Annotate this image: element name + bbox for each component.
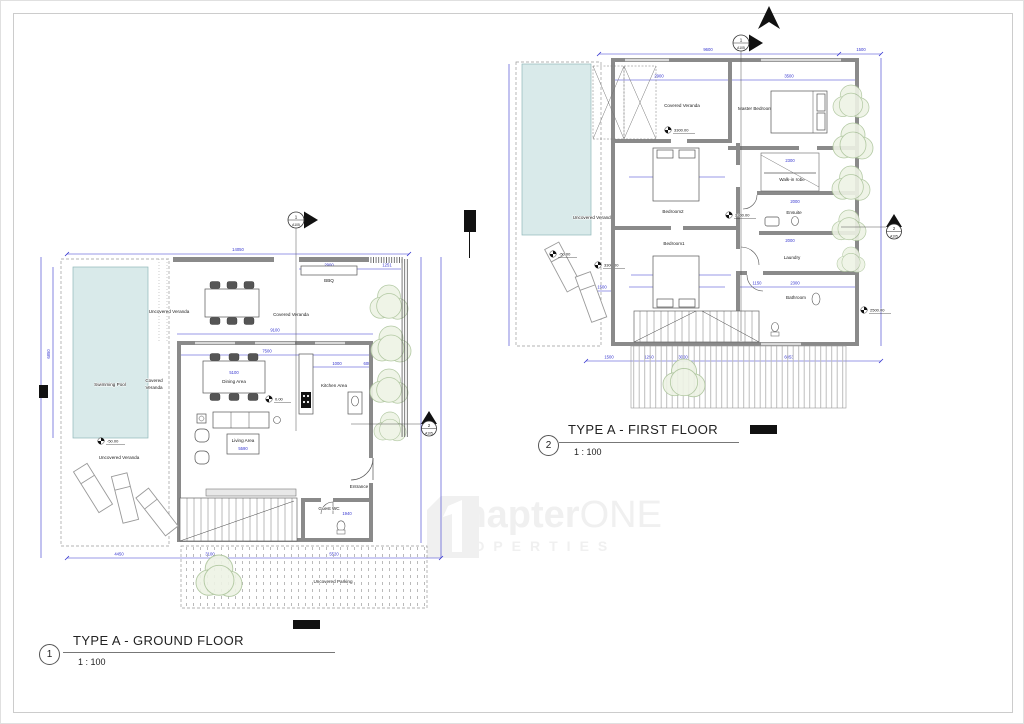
ff-title-scale: 1 : 100 xyxy=(574,447,602,457)
dim-hall: 1150 xyxy=(752,281,762,286)
gf-section1-sheet: A105 xyxy=(292,223,300,227)
master-bedroom-label: Master Bedroom xyxy=(738,106,772,111)
dim-pool-gap: 1500 xyxy=(597,285,607,290)
ff-level-marker-bath xyxy=(861,307,867,313)
laundry-label: Laundry xyxy=(784,255,801,260)
covered-veranda-side-label-2: Veranda xyxy=(145,385,163,390)
ff-section2-sheet: A105 xyxy=(890,235,898,239)
entrance-label: Entrance xyxy=(350,484,369,489)
gf-title-underline xyxy=(63,652,335,653)
ff-staircase xyxy=(634,311,759,342)
ff-level-bath: 2500.00 xyxy=(870,308,885,313)
ground-floor-plan: 14050 2900 1251 3000 6850 9100 7500 900 … xyxy=(29,196,474,671)
first-floor-plan: 9600 1500 2900 3500 1500 3500 4900 3500 … xyxy=(499,3,969,463)
boundary-hatch-right xyxy=(401,259,408,437)
level-interior: 0.00 xyxy=(275,397,284,402)
section-cut-line xyxy=(469,232,470,258)
uncovered-parking-label: Uncovered Parking xyxy=(313,579,353,584)
guest-wc xyxy=(301,498,373,542)
dim-laundry: 2000 xyxy=(785,238,795,243)
section-cut-mark xyxy=(39,385,48,398)
bedroom2-label: Bedroom2 xyxy=(662,209,684,214)
gf-title-number: 1 xyxy=(39,644,60,665)
ff-level-hall: 3300.00 xyxy=(735,213,750,218)
ff-title-underline xyxy=(559,442,739,443)
stair-landing xyxy=(206,489,296,496)
sun-lounger xyxy=(575,272,606,323)
dim-bottom-a: 1500 xyxy=(604,355,614,360)
ff-uncovered-veranda-label: Uncovered Veranda xyxy=(573,215,614,220)
dim-interior-span: 7500 xyxy=(262,349,272,354)
gf-title-scale: 1 : 100 xyxy=(78,657,106,667)
brand-accent: ONE xyxy=(580,494,662,536)
veranda-roof-edge-2 xyxy=(299,257,369,262)
covered-veranda-side-label-1: Covered xyxy=(145,378,163,383)
scale-bar-mark xyxy=(293,620,320,629)
staircase xyxy=(180,498,297,541)
ff-level-veranda: 3300.00 xyxy=(674,128,689,133)
bbq-label: BBQ xyxy=(324,278,334,283)
master-bed xyxy=(771,91,827,133)
dim-kitchen-b: 1000 xyxy=(332,361,342,366)
dim-ensuite: 2000 xyxy=(790,199,800,204)
uncovered-veranda-top-label: Uncovered Veranda xyxy=(149,309,190,314)
dim-planter: 1251 xyxy=(382,263,392,268)
dim-ff-overall-top: 9600 xyxy=(703,47,713,52)
dim-veranda-span: 9100 xyxy=(270,328,280,333)
laundry-door xyxy=(741,247,759,265)
entrance-door xyxy=(351,458,373,480)
sun-lounger xyxy=(136,488,178,536)
dim-ff-top-right: 1500 xyxy=(856,47,866,52)
swimming-pool xyxy=(73,267,148,438)
ff-covered-veranda-label: Covered Veranda xyxy=(664,103,700,108)
uncovered-veranda-bottom-label: Uncovered Veranda xyxy=(99,455,140,460)
level-marker-interior xyxy=(266,396,272,402)
guest-wc-label: Guest WC xyxy=(318,506,340,511)
ff-level-pool: -50.00 xyxy=(559,252,571,257)
walk-in-robe-label: Walk-in robe xyxy=(779,177,805,182)
bathroom-label: Bathroom xyxy=(786,295,806,300)
bedroom2-bed xyxy=(653,148,699,201)
dim-veranda-left: 4450 xyxy=(114,552,124,557)
tree xyxy=(832,210,866,241)
ff-title-number: 2 xyxy=(538,435,559,456)
ff-level-marker-veranda xyxy=(665,127,671,133)
dim-master-width: 3500 xyxy=(784,74,794,79)
ff-level-marker-hall xyxy=(726,212,732,218)
tree xyxy=(832,166,870,200)
section-cut-mark xyxy=(464,210,476,232)
ensuite-label: Ensuite xyxy=(786,210,802,215)
ff-swimming-pool xyxy=(522,64,591,235)
sun-lounger xyxy=(73,463,112,512)
bbq-counter xyxy=(301,266,357,275)
gf-section2-sheet: A105 xyxy=(425,432,433,436)
dim-wc: 1940 xyxy=(342,511,352,516)
sun-lounger xyxy=(111,473,138,523)
bedroom1-label: Bedroom1 xyxy=(663,241,685,246)
level-pool-deck: -50.00 xyxy=(107,439,119,444)
tree xyxy=(833,123,873,159)
veranda-roof-edge xyxy=(173,257,274,262)
dim-overall-top: 14050 xyxy=(232,247,244,252)
level-marker-pool-deck xyxy=(98,438,104,444)
ff-title: TYPE A - FIRST FLOOR xyxy=(568,422,718,437)
covered-veranda-top-label: Covered Veranda xyxy=(273,312,309,317)
timber-deck xyxy=(631,346,846,408)
living-area-label: Living Area xyxy=(232,438,255,443)
sun-lounger xyxy=(545,242,582,292)
dim-dining-table: 5100 xyxy=(229,370,239,375)
tree xyxy=(837,247,865,272)
dim-robe: 2300 xyxy=(785,158,795,163)
bedroom1-bed xyxy=(653,256,699,308)
dim-pool-length: 6850 xyxy=(46,349,51,359)
ff-level-marker-exterior xyxy=(595,262,601,268)
scale-bar-mark xyxy=(750,425,777,434)
dining-area-label: Dining Area xyxy=(222,379,246,384)
dining-table xyxy=(203,354,265,401)
dim-living-width: 5590 xyxy=(238,446,248,451)
kitchen-area-label: Kitchen Area xyxy=(321,383,347,388)
dim-bath: 2300 xyxy=(790,281,800,286)
ff-level-marker-pool xyxy=(550,251,556,257)
pergola xyxy=(593,66,656,139)
boundary-hatch-top xyxy=(369,257,403,263)
swimming-pool-label: Swimming Pool xyxy=(94,382,126,387)
living-area-label-box xyxy=(227,434,259,454)
north-arrow-icon xyxy=(758,6,780,29)
tree xyxy=(833,85,869,117)
gf-title: TYPE A - GROUND FLOOR xyxy=(73,633,244,648)
drawing-sheet: ChapterONE PROPERTIES xyxy=(0,0,1024,724)
outdoor-dining-table xyxy=(205,282,259,325)
ff-section1-sheet: A105 xyxy=(737,46,745,50)
